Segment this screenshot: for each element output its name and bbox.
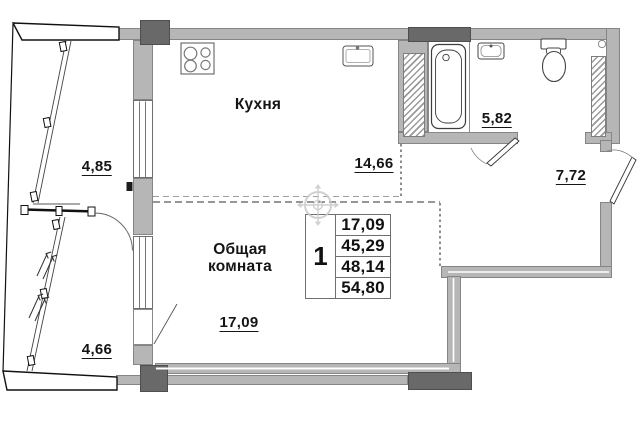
balcony-lower-area: 4,66 (82, 341, 112, 359)
balcony-door (95, 182, 133, 251)
stamp-area-total: 54,80 (336, 277, 390, 298)
hallway-area: 7,72 (556, 167, 586, 185)
bathroom-sink-icon (478, 43, 504, 59)
stamp-areas: 17,09 45,29 48,14 54,80 (336, 215, 390, 298)
wall-entry-top-jamb (600, 140, 612, 152)
column-top-left (140, 20, 170, 45)
toilet-icon (541, 39, 566, 82)
balcony-divider (24, 210, 95, 212)
stamp-table: 1 17,09 45,29 48,14 54,80 (305, 214, 391, 299)
kitchen-sink-icon (343, 46, 373, 66)
parapet-bottom (3, 371, 117, 390)
pipe-icon (598, 40, 605, 47)
window-leader-line (154, 304, 177, 344)
floor-plan: Кухня 14,66 Общая комната 17,09 5,82 7,7… (0, 0, 640, 448)
wall-top (36, 28, 608, 40)
vent-shaft-right (591, 56, 606, 137)
window-small (133, 309, 153, 345)
balcony-upper-area: 4,85 (82, 158, 112, 176)
wall-left-b (133, 178, 153, 235)
wall-left-c (133, 345, 153, 365)
wall-hall-right (600, 202, 612, 268)
balcony-facade (3, 23, 119, 390)
stove-icon (181, 43, 214, 74)
window-upper (133, 100, 153, 178)
window-direction-arrows (29, 254, 53, 321)
entrance-door (607, 150, 636, 204)
wall-right-top (606, 28, 620, 144)
wall-room-right (447, 276, 461, 368)
kitchen-label: Кухня (235, 96, 281, 114)
vent-shaft-left (403, 53, 425, 137)
stamp-area-living: 17,09 (336, 215, 390, 235)
living-room-area: 17,09 (219, 314, 258, 332)
stamp-area-reduced-total: 48,14 (336, 256, 390, 277)
door-handle (127, 182, 133, 191)
wall-left-a (133, 40, 153, 100)
bathtub-niche (428, 40, 470, 133)
bathroom-area: 5,82 (482, 110, 512, 128)
column-bottom-left (140, 365, 168, 392)
living-room-label: Общая комната (184, 241, 296, 275)
kitchen-area: 14,66 (354, 155, 393, 173)
window-lower (133, 236, 153, 309)
column-top-right (408, 27, 471, 42)
column-bottom-right (408, 372, 472, 390)
stamp-rooms-count: 1 (306, 215, 336, 298)
stamp-area-usable: 45,29 (336, 235, 390, 256)
wall-hall-bottom (441, 266, 612, 278)
